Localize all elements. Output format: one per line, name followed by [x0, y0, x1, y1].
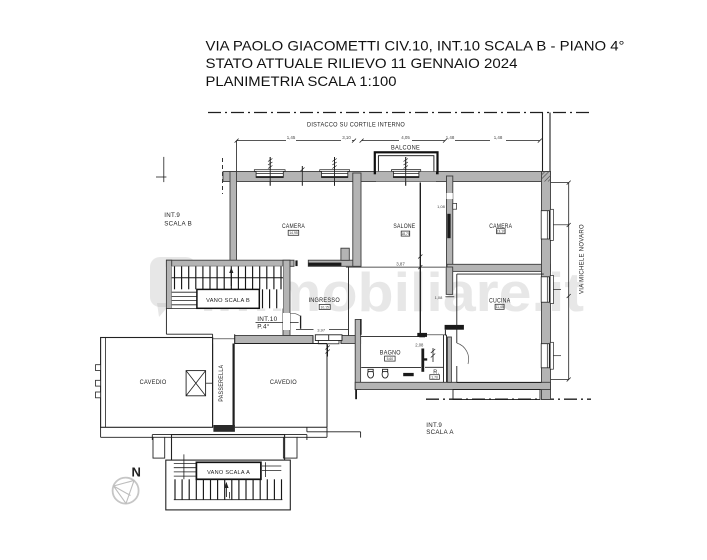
svg-text:DISTACCO SU CORTILE INTERNO: DISTACCO SU CORTILE INTERNO [307, 122, 405, 129]
svg-text:18,75: 18,75 [401, 232, 410, 236]
svg-text:STATO ATTUALE RILIEVO 11 GENNA: STATO ATTUALE RILIEVO 11 GENNAIO 2024 [206, 56, 518, 71]
svg-text:CUCINA: CUCINA [489, 297, 511, 304]
svg-text:VIA MICHELE NOVARO: VIA MICHELE NOVARO [579, 224, 586, 294]
svg-text:1,45: 1,45 [287, 135, 296, 140]
svg-text:VANO SCALA A: VANO SCALA A [207, 470, 250, 476]
svg-text:13,10: 13,10 [497, 230, 506, 234]
svg-text:VIA PAOLO GIACOMETTI CIV.10, I: VIA PAOLO GIACOMETTI CIV.10, INT.10 SCAL… [206, 39, 625, 54]
svg-text:CAVEDIO: CAVEDIO [140, 379, 167, 386]
svg-text:INT.10: INT.10 [257, 316, 277, 323]
svg-text:1,70: 1,70 [431, 375, 438, 379]
svg-text:N: N [132, 465, 142, 480]
svg-text:3,10: 3,10 [342, 135, 351, 140]
svg-text:BALCONE: BALCONE [391, 146, 420, 152]
svg-text:SCALA A: SCALA A [426, 429, 454, 436]
svg-text:2,08: 2,08 [415, 343, 424, 348]
svg-text:1,48: 1,48 [446, 135, 455, 140]
svg-text:5,60: 5,60 [387, 357, 394, 361]
svg-text:3,87: 3,87 [396, 262, 405, 267]
svg-text:SCALA B: SCALA B [164, 220, 192, 227]
svg-text:3,97: 3,97 [317, 327, 326, 332]
svg-text:PLANIMETRIA SCALA 1:100: PLANIMETRIA SCALA 1:100 [206, 74, 397, 89]
svg-text:VANO SCALA B: VANO SCALA B [206, 298, 250, 304]
svg-text:11,45: 11,45 [495, 305, 503, 309]
svg-text:CAMERA: CAMERA [282, 223, 305, 230]
svg-text:PASSERELLA: PASSERELLA [219, 365, 225, 402]
svg-text:INT.9: INT.9 [164, 212, 180, 219]
svg-text:INGRESSO: INGRESSO [308, 297, 340, 304]
svg-text:SALONE: SALONE [393, 223, 415, 230]
svg-text:1,08: 1,08 [435, 295, 444, 300]
svg-text:1,08: 1,08 [437, 204, 446, 209]
svg-text:P.4°: P.4° [257, 323, 270, 331]
svg-text:CAVEDIO: CAVEDIO [270, 379, 297, 386]
svg-text:4,05: 4,05 [401, 135, 410, 140]
svg-text:10,15: 10,15 [320, 305, 329, 309]
svg-text:14,95: 14,95 [289, 231, 298, 235]
svg-text:BAGNO: BAGNO [380, 349, 401, 356]
svg-text:1,48: 1,48 [494, 135, 503, 140]
